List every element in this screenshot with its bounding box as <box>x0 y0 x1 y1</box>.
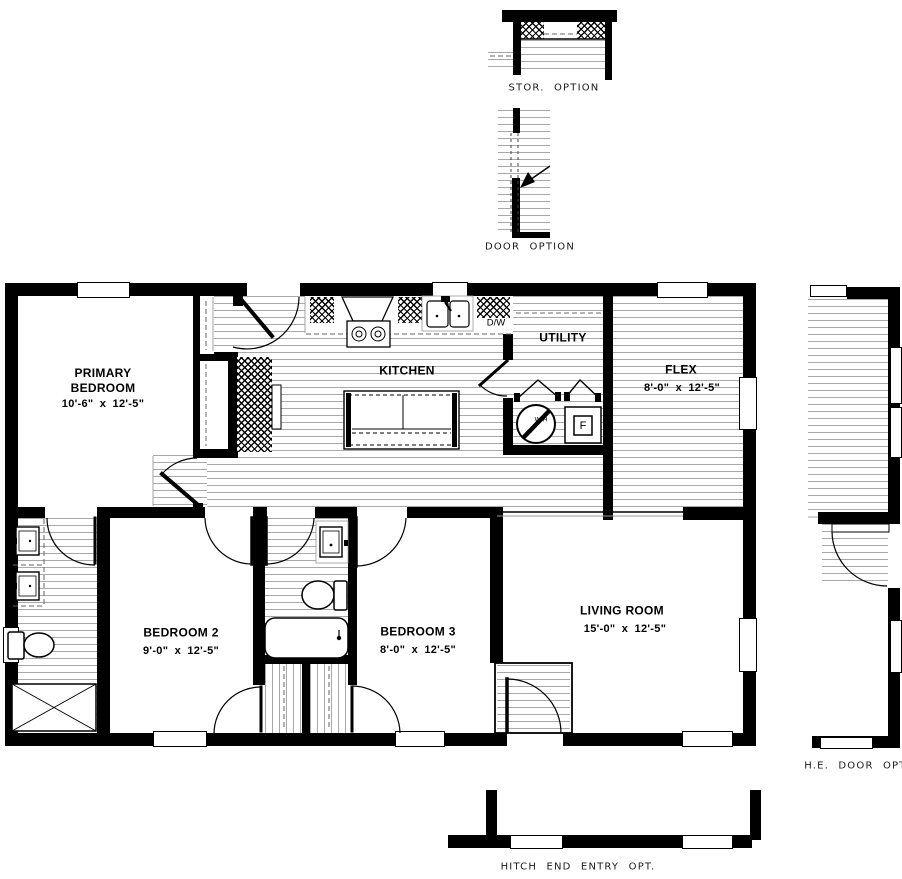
window <box>395 731 445 747</box>
window <box>3 627 19 663</box>
window <box>682 835 733 849</box>
window <box>153 731 207 747</box>
window <box>739 377 757 430</box>
window <box>432 282 468 298</box>
wall-opening <box>507 733 563 746</box>
window <box>890 407 902 458</box>
wall-opening <box>247 283 300 296</box>
window <box>820 737 873 749</box>
windows-layer <box>0 0 902 879</box>
floor-plan: PRIMARY BEDROOM 10'-6" x 12'-5" KITCHEN … <box>0 0 902 879</box>
window <box>510 835 563 849</box>
window <box>890 347 902 404</box>
window <box>657 282 708 298</box>
window <box>682 731 733 747</box>
wall-opening <box>45 507 95 518</box>
window <box>890 620 902 673</box>
window <box>810 285 847 297</box>
window <box>77 282 130 298</box>
window <box>739 618 757 672</box>
